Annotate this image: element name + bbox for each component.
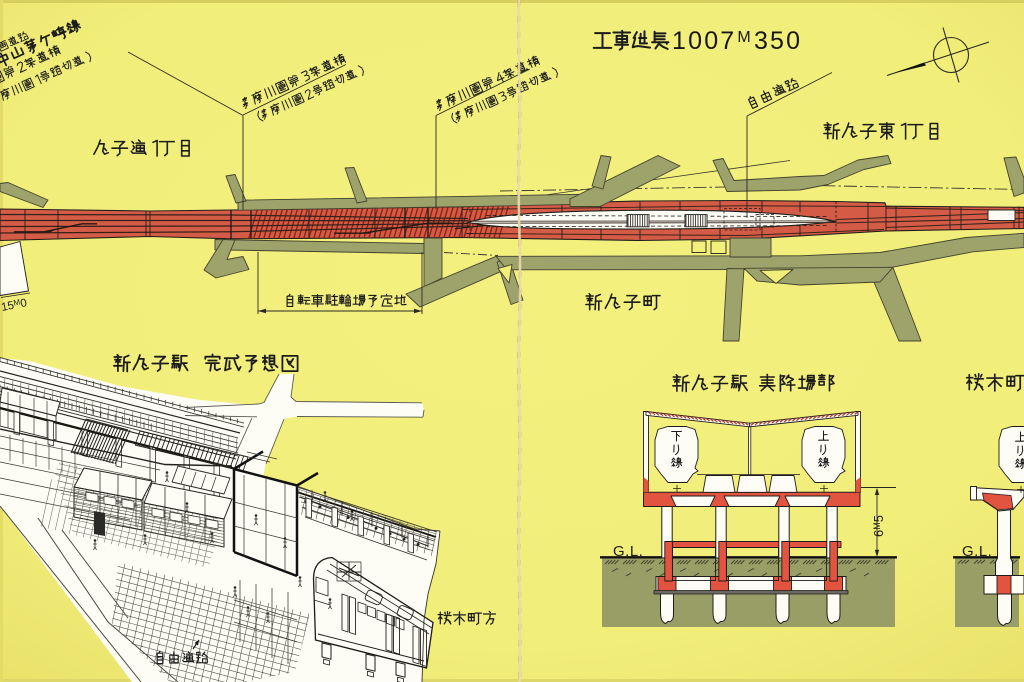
svg-text:G.L.: G.L.	[613, 543, 643, 560]
svg-text:G.L.: G.L.	[962, 543, 992, 560]
